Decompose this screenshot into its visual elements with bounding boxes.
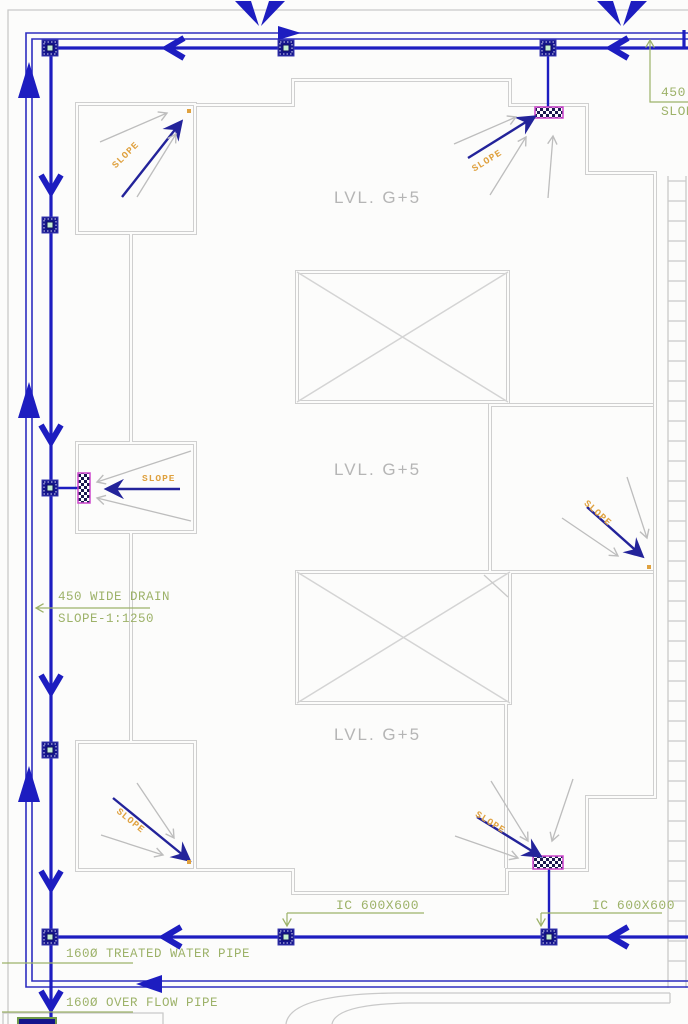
level-label-middle: LVL. G+5 (334, 460, 421, 480)
flow-entry-arrows (235, 1, 647, 26)
ic-chamber-label-left: IC 600X600 (336, 898, 419, 913)
ic-chamber (42, 742, 58, 758)
ic-chamber (540, 40, 556, 56)
drain-bottom-right (533, 856, 563, 869)
treated-water-pipe-label: 160Ø TREATED WATER PIPE (66, 947, 250, 961)
collection-tank (18, 1018, 56, 1024)
overflow-flow-arrows (18, 26, 301, 993)
road-curve (286, 993, 670, 1024)
edge-drain-slope-label: SLOPE (661, 104, 688, 119)
ic-chamber (541, 929, 557, 945)
drain-mid-left (78, 473, 90, 503)
ic-chamber-label-right: IC 600X600 (592, 898, 675, 913)
low-point-dots (187, 109, 651, 864)
ic-chamber (42, 40, 58, 56)
drainage-plan: LVL. G+5 LVL. G+5 LVL. G+5 450 WIDE DRAI… (0, 0, 688, 1024)
level-label-bottom: LVL. G+5 (334, 725, 421, 745)
fall-arrows (97, 113, 647, 858)
shaft-cross-bottom (297, 572, 510, 703)
level-label-top: LVL. G+5 (334, 188, 421, 208)
ic-chamber (42, 217, 58, 233)
ic-chamber (42, 480, 58, 496)
hatched-wall (668, 176, 686, 988)
ic-chamber (278, 929, 294, 945)
wide-drain-slope-annotation: SLOPE-1:1250 (58, 612, 154, 626)
plan-linework (0, 0, 688, 1024)
overflow-pipe-label: 160Ø OVER FLOW PIPE (66, 996, 218, 1010)
edge-drain-width-label: 450 (661, 85, 686, 100)
wide-drain-annotation: 450 WIDE DRAIN (58, 590, 170, 604)
ic-chamber (42, 929, 58, 945)
shaft-cross-top (297, 272, 508, 402)
drain-top-right (535, 107, 563, 118)
slope-label-mid-left: SLOPE (142, 473, 176, 484)
slope-arrows (107, 117, 642, 860)
ic-chamber (278, 40, 294, 56)
